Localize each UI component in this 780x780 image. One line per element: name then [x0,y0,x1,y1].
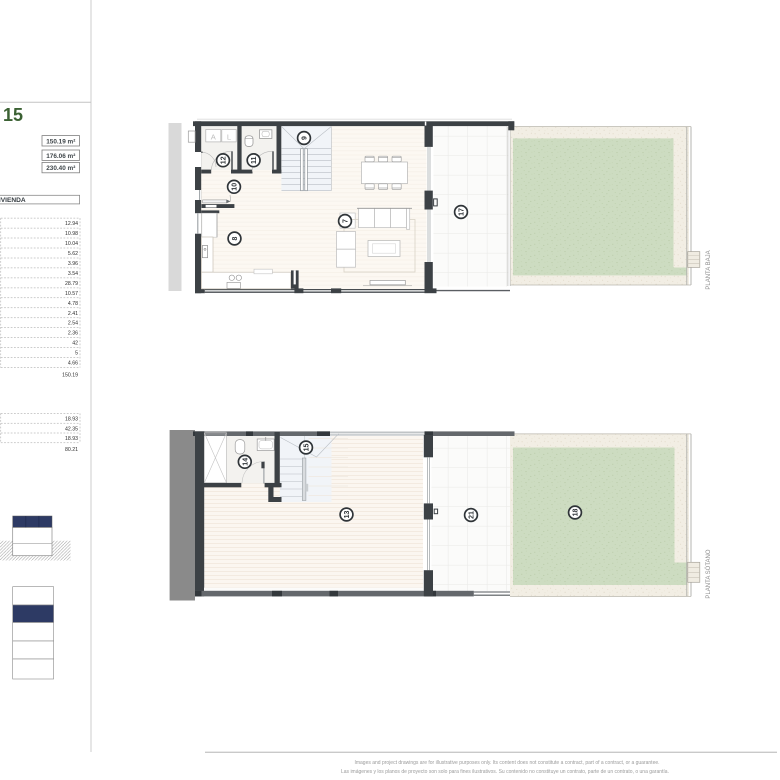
svg-text:10.04: 10.04 [65,241,78,247]
svg-text:8: 8 [232,236,239,240]
svg-text:2.36: 2.36 [68,331,78,337]
svg-text:13: 13 [344,511,351,519]
svg-text:176.06 m²: 176.06 m² [46,153,75,160]
svg-text:150.19: 150.19 [62,372,78,378]
svg-text:18: 18 [573,509,580,517]
svg-text:VIVIENDA: VIVIENDA [0,197,26,204]
svg-text:15: 15 [3,105,23,125]
svg-text:3.54: 3.54 [68,271,78,277]
svg-text:11: 11 [251,156,258,164]
svg-text:4.78: 4.78 [68,301,78,307]
svg-text:2.41: 2.41 [68,311,78,317]
svg-text:3.96: 3.96 [68,261,78,267]
svg-text:18.93: 18.93 [65,436,78,442]
svg-text:80.21: 80.21 [65,447,78,453]
svg-text:230.40 m²: 230.40 m² [46,165,75,172]
svg-text:2.54: 2.54 [68,321,78,327]
svg-text:5: 5 [75,351,78,357]
svg-text:17: 17 [459,208,466,216]
svg-text:PLANTA BAJA: PLANTA BAJA [706,250,712,289]
svg-text:12.94: 12.94 [65,221,78,227]
svg-text:28.79: 28.79 [65,281,78,287]
svg-text:10.57: 10.57 [65,291,78,297]
svg-text:10.98: 10.98 [65,231,78,237]
svg-text:42: 42 [72,341,78,347]
svg-text:9: 9 [302,136,309,140]
svg-text:42.35: 42.35 [65,426,78,432]
svg-text:L: L [227,132,231,141]
svg-text:12: 12 [221,156,228,164]
svg-text:5.62: 5.62 [68,251,78,257]
svg-text:150.19 m²: 150.19 m² [46,138,75,145]
svg-text:4.66: 4.66 [68,361,78,367]
svg-text:7: 7 [343,219,350,223]
svg-text:14: 14 [242,458,249,466]
svg-text:PLANTA SÓTANO: PLANTA SÓTANO [705,549,712,598]
svg-text:15: 15 [304,444,311,452]
svg-text:18.93: 18.93 [65,417,78,423]
svg-text:21: 21 [469,511,476,519]
svg-text:10: 10 [232,183,239,191]
svg-text:Las imágenes y los planos de p: Las imágenes y los planos de proyecto so… [341,769,669,775]
svg-text:Images and project drawings ar: Images and project drawings are for illu… [354,760,659,766]
